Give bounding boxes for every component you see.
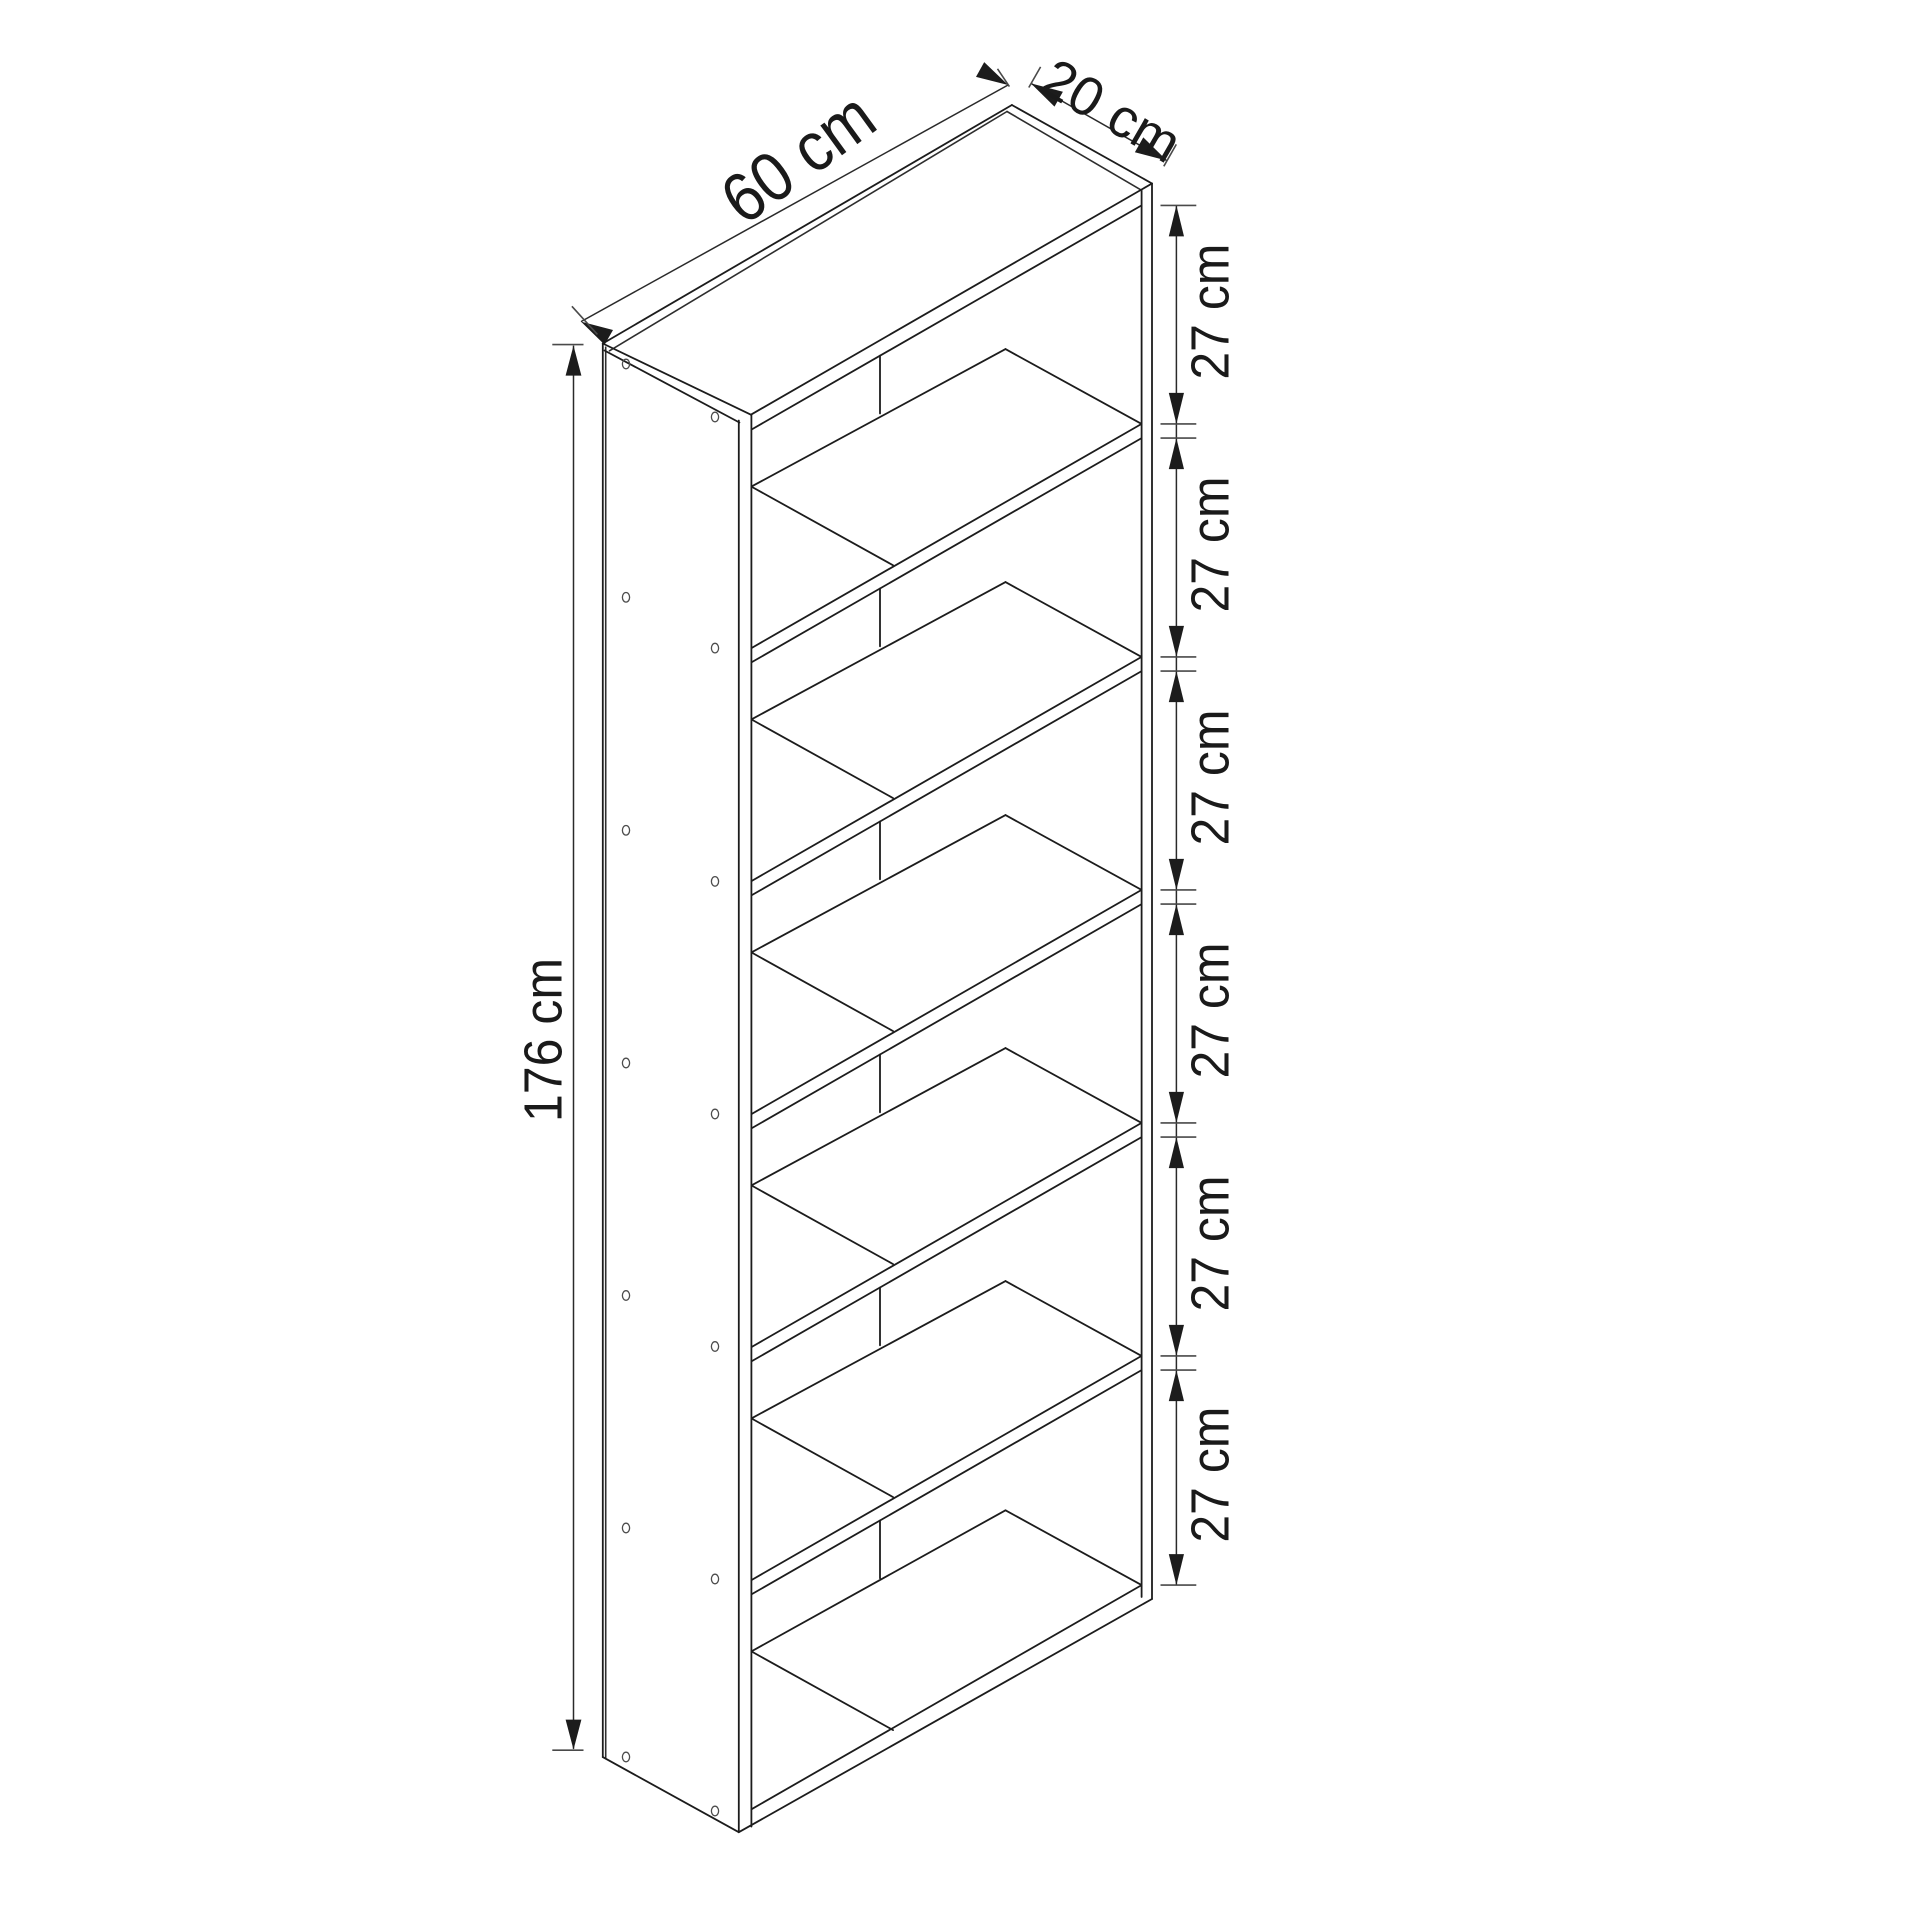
svg-text:27 cm: 27 cm [1181, 244, 1241, 380]
svg-text:27 cm: 27 cm [1181, 709, 1241, 845]
svg-text:27 cm: 27 cm [1181, 1175, 1241, 1311]
svg-text:27 cm: 27 cm [1181, 476, 1241, 612]
svg-text:176 cm: 176 cm [514, 958, 574, 1122]
svg-text:27 cm: 27 cm [1181, 1407, 1241, 1543]
svg-text:27 cm: 27 cm [1181, 942, 1241, 1078]
svg-text:60 cm: 60 cm [707, 76, 889, 238]
svg-text:20 cm: 20 cm [1031, 46, 1192, 175]
